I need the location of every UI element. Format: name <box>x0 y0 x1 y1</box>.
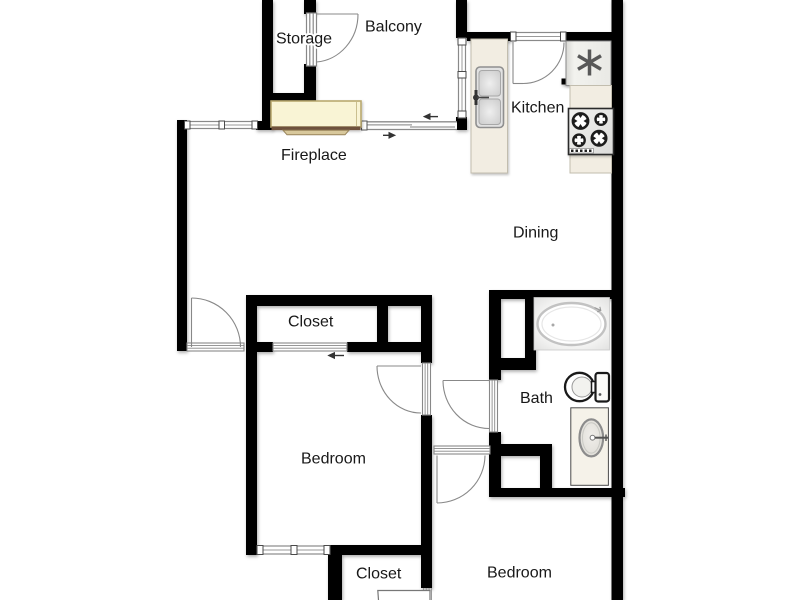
svg-text:Bedroom: Bedroom <box>487 565 552 582</box>
svg-text:Kitchen: Kitchen <box>511 100 564 117</box>
svg-text:Bath: Bath <box>520 390 553 407</box>
svg-text:Closet: Closet <box>356 566 402 583</box>
svg-text:Fireplace: Fireplace <box>281 147 347 164</box>
svg-text:Balcony: Balcony <box>365 19 422 36</box>
svg-text:Bedroom: Bedroom <box>301 451 366 468</box>
svg-text:Storage: Storage <box>276 31 332 48</box>
svg-text:Closet: Closet <box>288 314 334 331</box>
svg-text:Dining: Dining <box>513 225 558 242</box>
